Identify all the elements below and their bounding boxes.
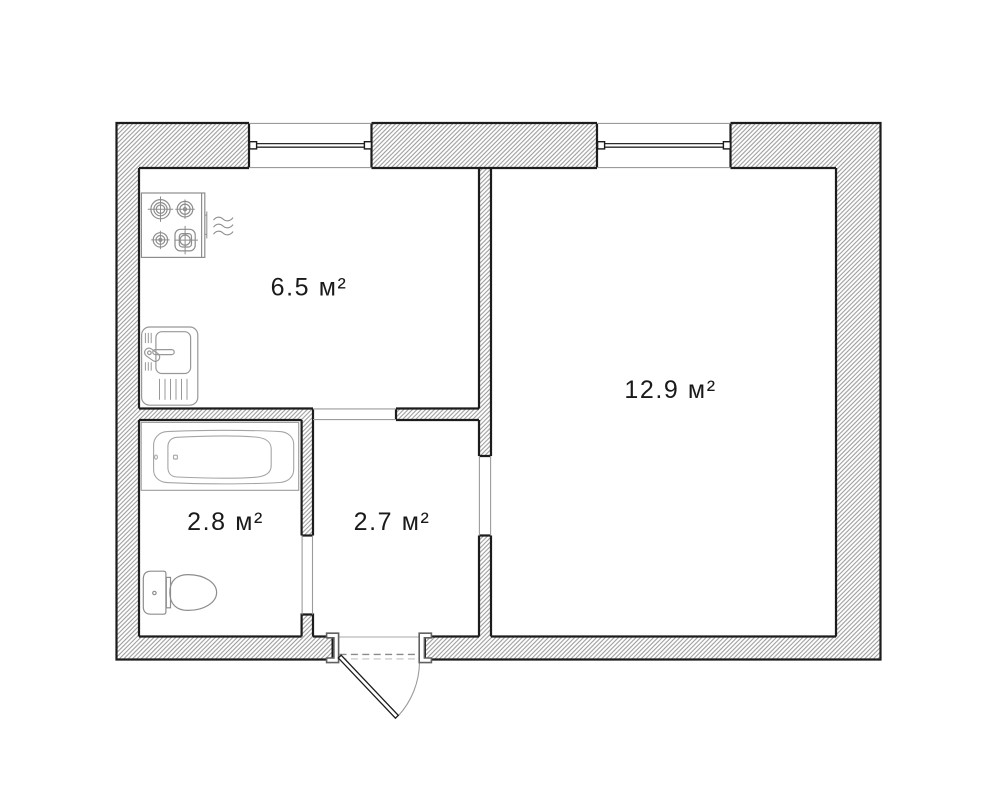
svg-text:6.5 м²: 6.5 м² [271, 274, 348, 302]
svg-text:2.7 м²: 2.7 м² [354, 508, 431, 536]
svg-text:2.8 м²: 2.8 м² [187, 508, 264, 536]
svg-text:12.9 м²: 12.9 м² [624, 376, 716, 404]
